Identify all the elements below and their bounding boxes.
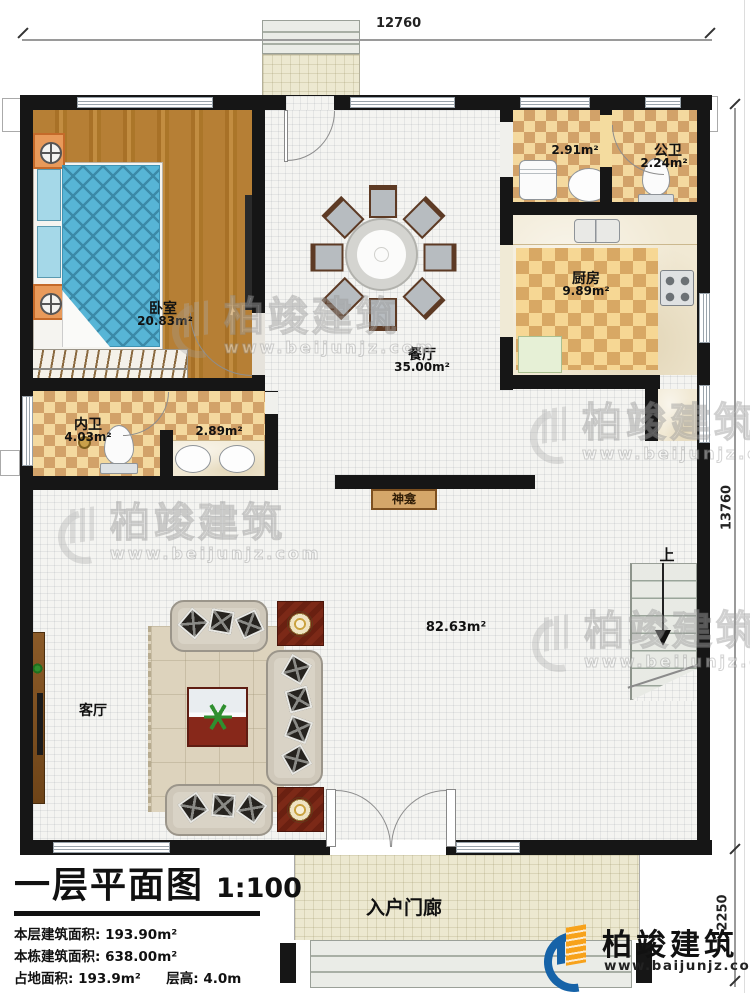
window [699,385,710,443]
wall-greatroom-north-left [20,476,278,490]
floor-plan-page: { "drawing": { "dimensions": { "top": "1… [0,0,750,993]
window [645,97,681,108]
dining-chair [311,244,344,272]
window [22,396,33,466]
stairs-direction-line [662,563,664,631]
door-gap [600,115,612,167]
kitchen-sink [574,219,620,243]
table-lamp [287,797,313,823]
wall-kitchen-jog [645,389,658,441]
wall-greatroom-north-center [335,475,535,489]
top-dimension-label: 12760 [376,16,421,31]
wall-kitchen-south [500,375,660,389]
title-underline [14,911,260,916]
cabinet-plant [32,662,43,675]
wall-bath-divider [160,430,173,477]
toilet-tank [100,463,138,474]
right-dimension-label-main: 13760 [720,478,735,538]
washing-machine [519,160,557,200]
site-area-label: 占地面积: [14,971,73,987]
floor-area-value: 193.90m² [105,927,177,943]
top-dimension-line [22,39,712,41]
door-leaf [284,110,288,162]
floor-area-label: 本层建筑面积: [14,927,100,943]
entry-porch-label: 入户门廊 [366,893,442,920]
vanity-area: 2.89m² [195,424,242,438]
door-gap [265,392,278,414]
window [53,842,170,853]
door-gap [500,122,513,177]
window [520,97,590,108]
great-room-area: 82.63m² [426,620,486,635]
nightstand-lamp [33,284,65,320]
window [350,97,455,108]
plan-scale: 1:100 [216,873,302,904]
brand-website: www.baijunjz.com [604,958,750,974]
stairs-arrow-icon [655,630,671,646]
table-lamp [287,611,313,637]
tv [37,693,43,755]
sofa-pillow [211,793,236,818]
title-block: 一层平面图 1:100 本层建筑面积: 193.90m² 本栋建筑面积: 638… [14,856,304,990]
window [456,842,520,853]
dining-area: 35.00m² [394,360,450,374]
building-area-value: 638.00m² [105,949,177,965]
sofa-pillow [208,608,235,635]
wall-bedroom-south [20,378,265,391]
storey-height-value: 4.0m [203,971,241,987]
building-area-line: 本栋建筑面积: 638.00m² [14,946,304,968]
right-dimension-line [734,108,736,987]
back-porch-steps [262,20,360,54]
dining-table-center [374,247,389,262]
window [699,293,710,343]
plant [204,703,232,731]
brand-logo: 柏竣建筑 www.baijunjz.com [540,918,748,988]
shrine-box: 神龛 [371,489,437,510]
dining-chair [369,298,397,331]
building-area-label: 本栋建筑面积: [14,949,100,965]
entry-door-frame [446,789,456,847]
laundry-area: 2.91m² [551,143,598,157]
private-bath-area: 4.03m² [64,430,111,444]
storey-height-label: 层高: [166,971,198,987]
kitchen-area: 9.89m² [562,284,609,298]
stove [660,270,694,306]
stairs-up-label: 上 [659,544,674,565]
kitchen-nook-floor [658,389,697,441]
entry-door-frame [326,789,336,847]
shrine-label: 神龛 [392,492,416,506]
site-area-line: 占地面积: 193.9m² 层高: 4.0m [14,968,304,990]
bed-pillow [37,169,61,221]
living-label: 客厅 [79,700,107,720]
sheet-border-line [744,0,745,993]
plan-title: 一层平面图 [14,856,204,908]
ac-pad [0,450,20,476]
bedroom-area: 20.83m² [137,314,193,328]
door-gap [252,313,265,375]
public-bath-area: 2.24m² [640,156,687,170]
wall-left [20,95,33,855]
fridge [518,336,562,373]
door-gap [286,96,334,110]
dining-chair [424,244,457,272]
site-area-value: 193.9m² [78,971,141,987]
brand-logo-icon [544,926,598,982]
window [77,97,213,108]
door-gap [500,245,513,337]
bed-pillow [37,226,61,278]
floor-area-line: 本层建筑面积: 193.90m² [14,924,304,946]
nightstand-lamp [33,133,65,169]
wall-laundry-south [510,202,700,215]
dining-chair [369,185,397,218]
dim-tick [704,27,715,38]
dim-tick [17,27,28,38]
vanity-sink [219,445,255,473]
vanity-sink [175,445,211,473]
